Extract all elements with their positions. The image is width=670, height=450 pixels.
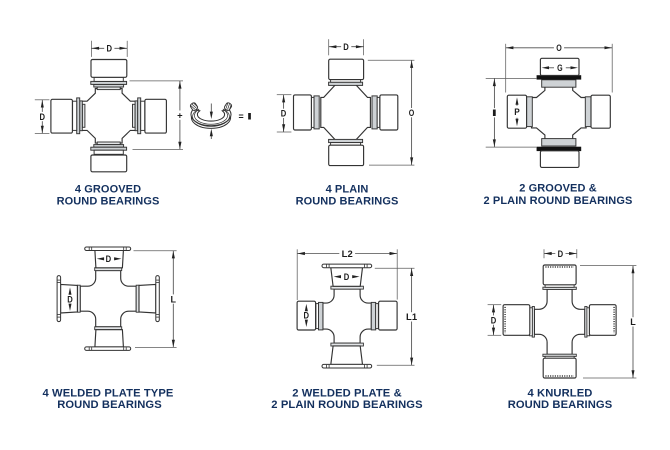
svg-text:D: D bbox=[558, 249, 564, 259]
svg-text:D: D bbox=[106, 254, 112, 264]
svg-text:L2: L2 bbox=[342, 249, 353, 259]
svg-text:D: D bbox=[281, 109, 287, 119]
svg-text:4 GROOVED: 4 GROOVED bbox=[75, 183, 141, 195]
svg-text:4 KNURLED: 4 KNURLED bbox=[528, 387, 593, 399]
svg-text:I: I bbox=[247, 112, 253, 122]
svg-text:4 PLAIN: 4 PLAIN bbox=[326, 183, 369, 195]
svg-text:I: I bbox=[492, 108, 498, 118]
svg-text:G: G bbox=[557, 63, 563, 73]
svg-text:L1: L1 bbox=[406, 312, 417, 322]
svg-text:2 WELDED PLATE &: 2 WELDED PLATE & bbox=[292, 387, 402, 399]
svg-text:D: D bbox=[67, 295, 73, 305]
svg-text:ROUND BEARINGS: ROUND BEARINGS bbox=[508, 399, 613, 411]
svg-text:P: P bbox=[514, 107, 520, 117]
svg-text:L: L bbox=[171, 294, 177, 304]
svg-text:D: D bbox=[304, 311, 310, 321]
svg-text:D: D bbox=[40, 112, 46, 122]
svg-text:ROUND BEARINGS: ROUND BEARINGS bbox=[296, 196, 399, 208]
svg-text:D: D bbox=[344, 272, 350, 282]
svg-text:ROUND BEARINGS: ROUND BEARINGS bbox=[57, 399, 162, 411]
svg-text:+: + bbox=[177, 111, 183, 121]
svg-text:ROUND BEARINGS: ROUND BEARINGS bbox=[57, 196, 160, 208]
svg-text:D: D bbox=[343, 42, 349, 52]
svg-text:2 GROOVED &: 2 GROOVED & bbox=[519, 182, 597, 194]
svg-text:D: D bbox=[107, 44, 113, 54]
svg-text:L: L bbox=[630, 317, 636, 327]
svg-text:=: = bbox=[239, 112, 244, 122]
svg-text:4 WELDED PLATE TYPE: 4 WELDED PLATE TYPE bbox=[43, 387, 174, 399]
svg-text:2 PLAIN ROUND BEARINGS: 2 PLAIN ROUND BEARINGS bbox=[271, 399, 423, 411]
svg-text:2 PLAIN ROUND BEARINGS: 2 PLAIN ROUND BEARINGS bbox=[484, 195, 633, 207]
svg-text:O: O bbox=[409, 108, 415, 118]
svg-text:O: O bbox=[556, 43, 562, 53]
svg-text:D: D bbox=[491, 315, 497, 325]
